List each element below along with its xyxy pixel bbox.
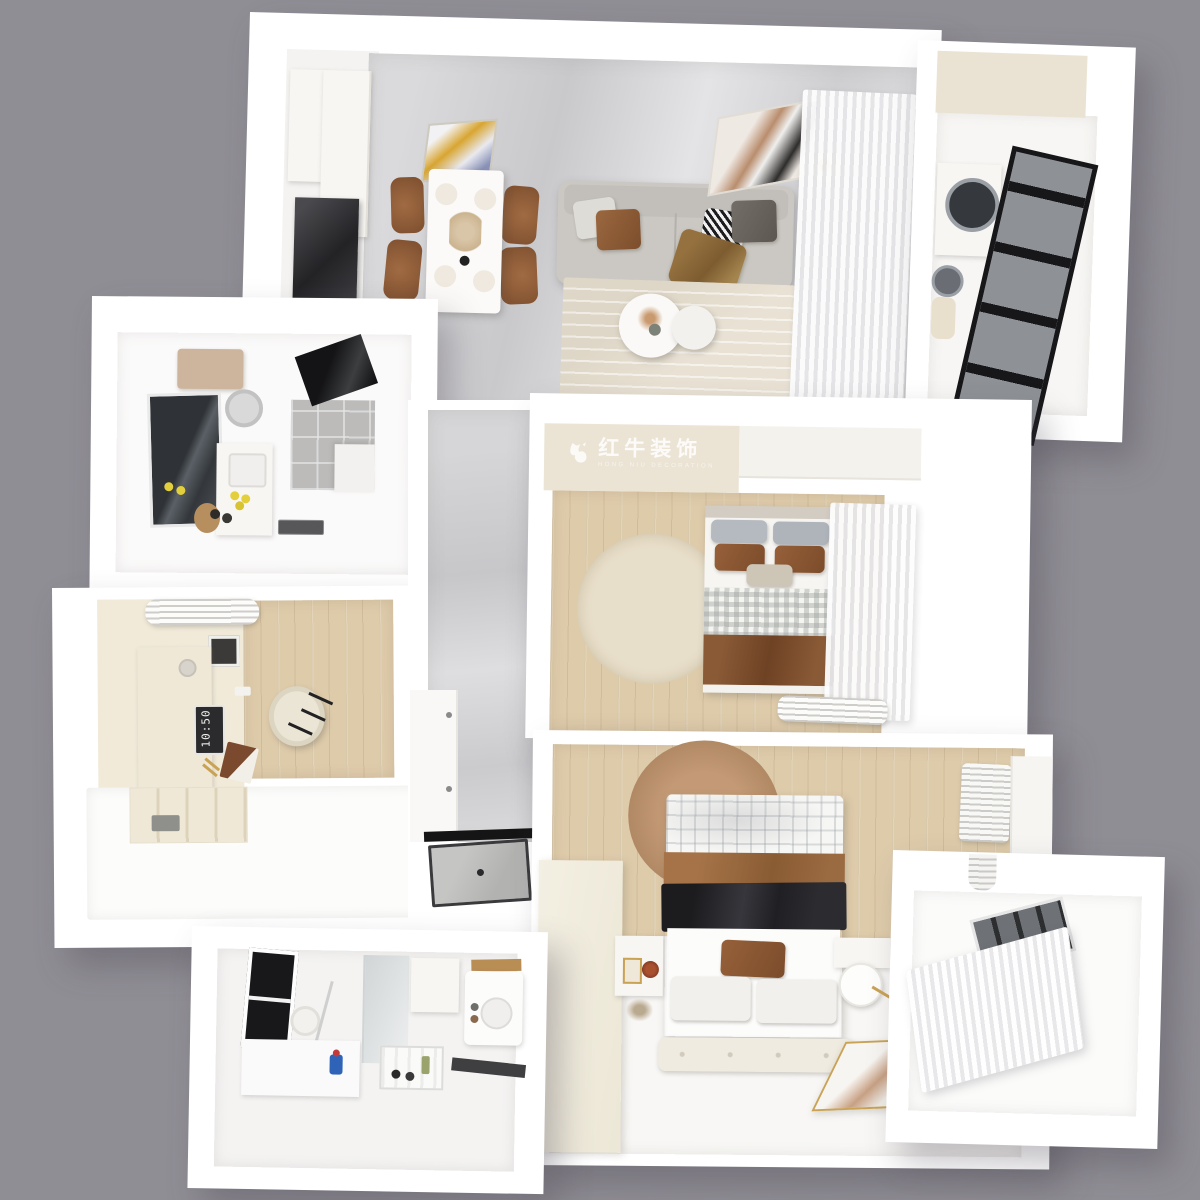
bedroom2-closet [739,426,922,481]
desk-frame-box [208,636,239,667]
bed2-pillow-lumbar [746,564,792,587]
monitor-clock: 10:50 [194,705,225,755]
place-setting [473,270,496,293]
bed3-pillow-white [756,979,836,1024]
vanity-sink [228,453,266,487]
desk-lamp [178,659,196,677]
dining-chair [501,185,540,246]
study-air-conditioner [145,599,259,626]
bottle-green [421,1056,429,1074]
place-setting [435,183,458,206]
side-table-round [839,963,883,1007]
bed2-gingham-duvet [704,587,835,638]
room-bathroom-main [89,296,438,601]
photo-frame-gold [623,958,642,984]
dark-cabinet [292,197,359,311]
dining-chair [383,239,424,302]
place-setting [474,188,497,211]
detergent-bottle-blue [329,1054,342,1074]
table-decor-vase [649,324,661,336]
bedroom2-curtain [824,502,917,721]
wine-bottle [459,256,469,266]
laundry-basket [931,297,956,340]
nightstand-left [615,936,664,996]
room-bathroom-second [187,926,548,1194]
mirror-reflection-lemons [164,482,173,491]
bed3-pillow-brown [720,940,786,979]
wood-shelf-strip [471,959,521,972]
keyboard [235,687,251,696]
hallway-wardrobe [410,690,458,842]
master-wardrobe-column [536,860,623,1153]
cushion-gray [731,200,777,243]
master-air-conditioner [959,763,1012,843]
shower-brand-plaque [278,520,324,535]
vanity2-toiletries [470,1015,478,1023]
room-laundry-balcony [904,40,1136,442]
vanity-counter [216,443,273,535]
room-study: 10:50 [52,585,441,948]
window-mullion [249,996,291,1004]
wardrobe-handle [446,712,452,718]
entry-door [428,839,532,908]
storage-compartments [129,787,247,844]
watermark: 红牛装饰 HONG NIU DECORATION [566,438,715,470]
bathroom2-window [240,947,299,1051]
room-balcony-small [885,850,1165,1149]
water-heater [177,349,243,390]
toiletry-dark [391,1070,400,1079]
bedroom2-header-wall: 红牛装饰 HONG NIU DECORATION [544,423,740,493]
drying-rack [379,1045,444,1090]
dining-chair [390,177,424,234]
table-centerpiece [449,209,482,254]
bed2-pillow-gray [711,520,767,544]
room-bedroom-second: 红牛装饰 HONG NIU DECORATION [525,393,1032,745]
bull-icon [566,440,592,466]
decor-plate-red [642,961,659,978]
office-chair [269,686,325,746]
soap-bottles [210,509,220,519]
master-bed [664,794,843,1038]
bed3-black-blanket [661,882,846,932]
dining-table [425,169,504,314]
watermark-subtitle: HONG NIU DECORATION [598,462,715,470]
living-curtain [789,90,917,419]
monitor-time: 10:50 [199,709,212,747]
bed3-pillow-white [670,976,750,1021]
bed-bench [658,1037,854,1073]
exhaust-fan [225,389,263,427]
storage-tray [152,815,180,831]
balcony-top-wall [935,51,1087,118]
bottle-cap-red [333,1049,340,1056]
cushion-brown [596,209,642,251]
watermark-text: 红牛装饰 HONG NIU DECORATION [598,438,715,470]
bed2-pillow-gray [773,521,829,545]
bathroom2-cabinet [411,958,460,1013]
door-handle [477,869,484,876]
watermark-title: 红牛装饰 [598,438,715,461]
study-wood-floor [243,600,394,779]
place-setting [434,265,457,288]
vanity2 [464,971,523,1046]
lemon [230,491,239,500]
vanity2-sink [480,997,513,1030]
dried-plant [626,999,652,1021]
bed2-brown-blanket [703,634,834,686]
washer-drum [944,177,1000,233]
bedroom2-bed [703,505,836,694]
bed3-brown-sheet [664,852,845,886]
bed3-plaid-blanket [666,794,844,860]
kitchen-upper-cabinet [288,69,326,182]
pendant-light [968,854,997,891]
dining-chair [499,246,538,305]
floorplan-stage: 10:50 红牛装饰 [0,0,1200,1200]
bedroom2-air-conditioner [777,695,888,725]
shower-step [334,444,374,492]
